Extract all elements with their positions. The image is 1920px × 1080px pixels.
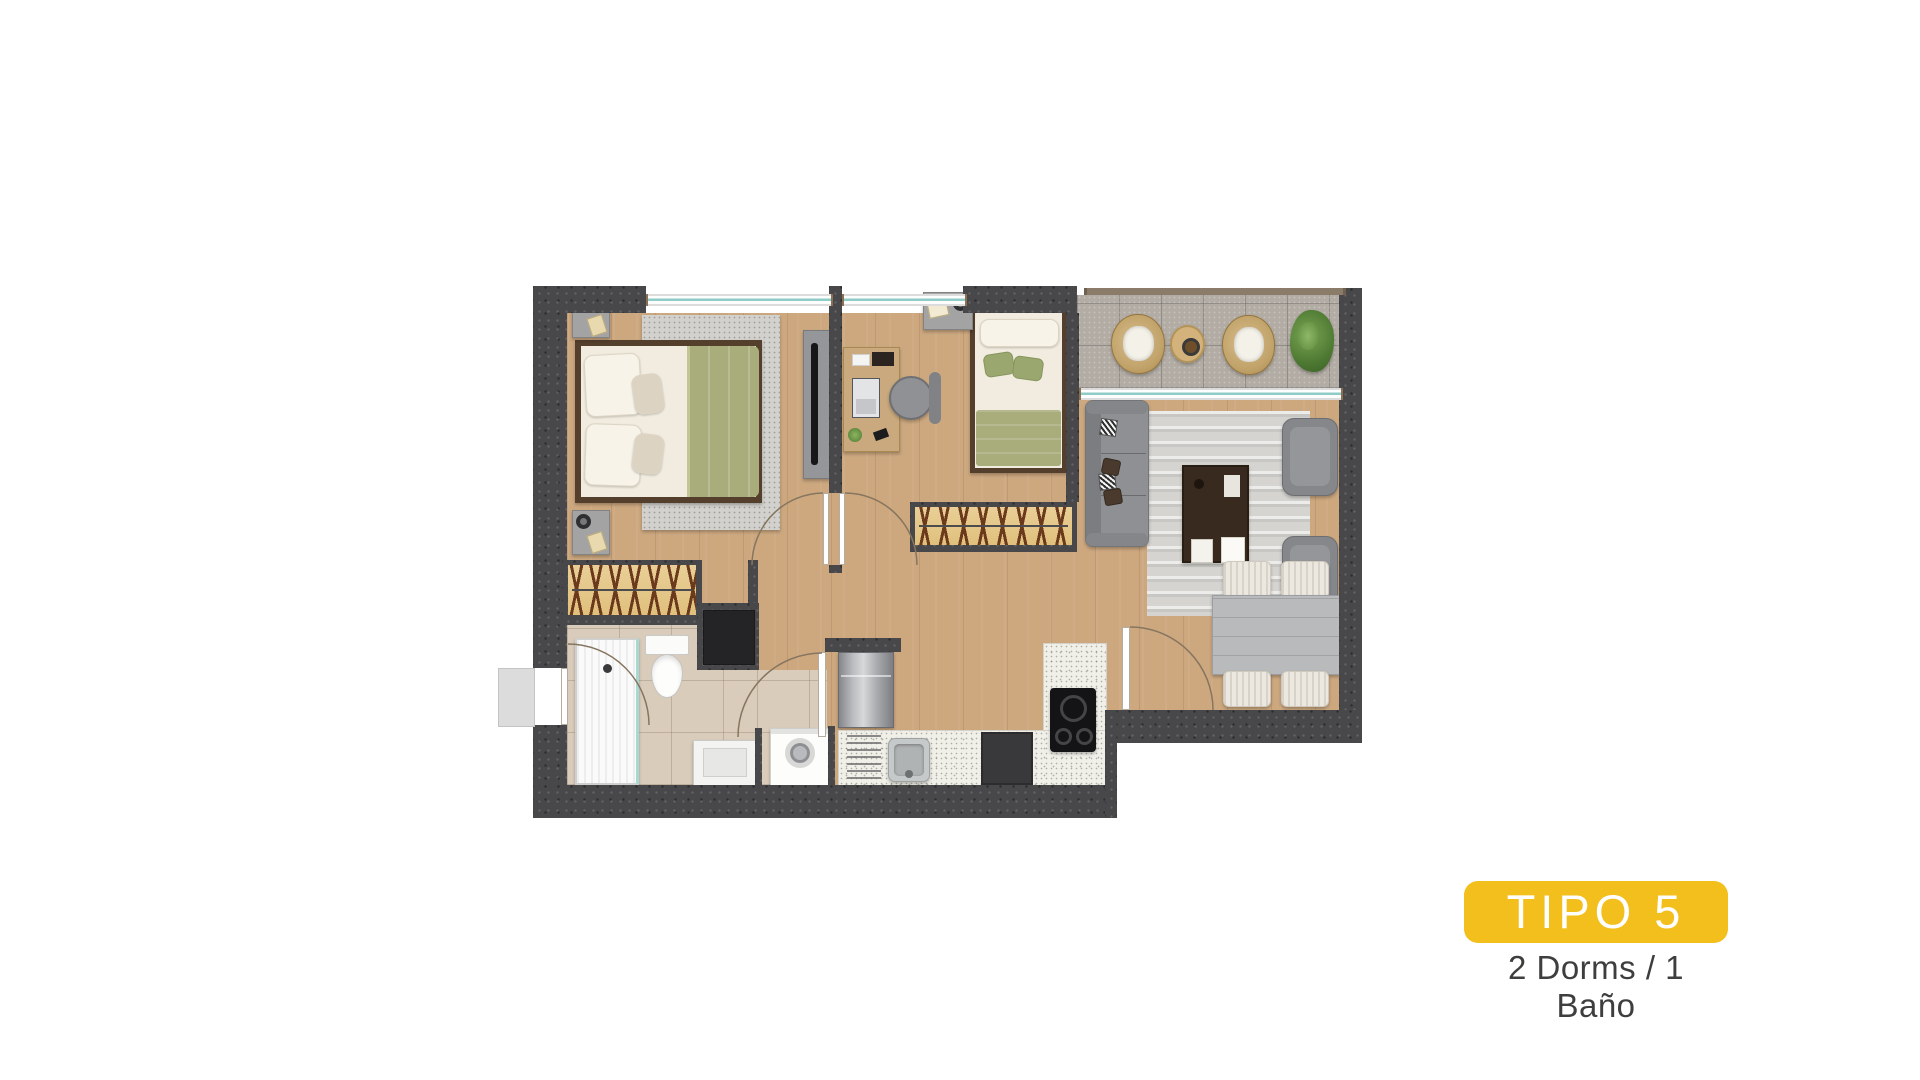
burner-icon	[1060, 695, 1087, 722]
window-bedroom1	[646, 294, 833, 306]
wall-bedroom2-right	[1066, 313, 1079, 502]
wall-central	[829, 313, 842, 493]
wardrobe-hangers	[915, 507, 1072, 545]
sofa	[1085, 400, 1149, 547]
coffee-table	[1182, 465, 1249, 563]
bathroom-sink	[693, 740, 757, 787]
wall-kitchen-pier	[825, 638, 901, 652]
balcony-railing	[1084, 288, 1346, 295]
floor-plan	[533, 280, 1363, 820]
book	[586, 314, 607, 337]
dining-chair	[1223, 561, 1271, 599]
shaft	[697, 603, 759, 670]
bedroom2-door	[839, 493, 845, 565]
decor-paper	[1224, 475, 1240, 497]
kitchen-sink	[888, 738, 930, 782]
dining-table	[1212, 595, 1340, 675]
fridge	[838, 652, 894, 728]
magazine	[1191, 539, 1213, 563]
bathroom-door	[818, 652, 826, 737]
tv-stand	[803, 330, 830, 479]
accent-pillow	[631, 432, 666, 475]
green-pillow	[1012, 355, 1045, 382]
shower-drain	[603, 664, 612, 673]
tray	[1221, 537, 1245, 563]
office-chair-back	[929, 372, 941, 424]
desk-plant	[848, 428, 862, 442]
plan-caption: 2 Dorms / 1 Baño	[1464, 949, 1728, 1025]
wall-stub-washer	[828, 726, 835, 785]
wall-step	[1105, 710, 1117, 818]
shower	[575, 638, 639, 785]
tv-icon	[811, 343, 818, 465]
entrance-landing	[498, 668, 535, 727]
kitchen-hall-door	[1122, 627, 1130, 710]
balcony-table	[1170, 325, 1205, 363]
wall-central-stub	[829, 565, 842, 573]
laptop-icon	[852, 378, 880, 418]
dining-chair	[1281, 561, 1329, 599]
wall-stub-sink	[755, 728, 762, 785]
nightstand	[572, 510, 610, 555]
page: TIPO 5 2 Dorms / 1 Baño	[0, 0, 1920, 1080]
toilet-tank	[645, 635, 689, 655]
window-living-balcony	[1079, 388, 1343, 400]
window-bedroom2	[842, 294, 967, 306]
wicker-chair	[1111, 314, 1165, 374]
desk-books	[872, 352, 894, 366]
green-pillow	[982, 351, 1015, 378]
bedroom1-double-bed	[575, 340, 762, 503]
green-duvet	[687, 346, 759, 497]
entrance-door	[561, 668, 568, 725]
throw-pillow	[1103, 488, 1124, 507]
type-badge: TIPO 5	[1464, 881, 1728, 943]
throw-pillow	[1099, 418, 1118, 437]
cooktop	[1050, 688, 1096, 752]
dish-rack-icon	[847, 735, 881, 779]
wardrobe-bedroom2	[910, 502, 1077, 552]
dining-chair	[1281, 671, 1329, 707]
sofa-arm	[1086, 401, 1148, 414]
bedroom2-single-bed	[970, 308, 1067, 473]
accent-pillow	[630, 372, 665, 416]
plan-label-block: TIPO 5 2 Dorms / 1 Baño	[1464, 881, 1728, 1025]
book	[586, 531, 607, 554]
bedroom1-door	[823, 493, 829, 565]
desk-paper	[852, 354, 870, 366]
wall-top-right	[963, 286, 1077, 313]
wardrobe-bedroom1	[562, 560, 702, 625]
sofa-arm	[1086, 533, 1148, 546]
decor-cup	[1194, 479, 1204, 489]
plant-icon	[1290, 310, 1334, 372]
wall-right	[1339, 288, 1362, 743]
pillow	[980, 319, 1059, 347]
armchair	[1282, 418, 1338, 496]
wall-bottom-left	[533, 785, 1105, 818]
wicker-chair	[1222, 315, 1275, 375]
burner-icon	[1076, 728, 1093, 745]
shaft-inner	[703, 610, 755, 665]
wardrobe-hangers	[568, 565, 696, 615]
wall-bottom-right	[1117, 710, 1362, 743]
burner-icon	[1055, 728, 1072, 745]
cushion-line	[1101, 453, 1146, 454]
phone	[873, 428, 889, 441]
type-badge-label: TIPO 5	[1507, 885, 1686, 938]
office-chair	[889, 376, 933, 420]
dark-cabinet	[981, 732, 1033, 785]
lamp-icon	[576, 514, 591, 529]
dining-chair	[1223, 671, 1271, 707]
throw-pillow	[1101, 457, 1122, 476]
green-blanket	[976, 410, 1061, 466]
